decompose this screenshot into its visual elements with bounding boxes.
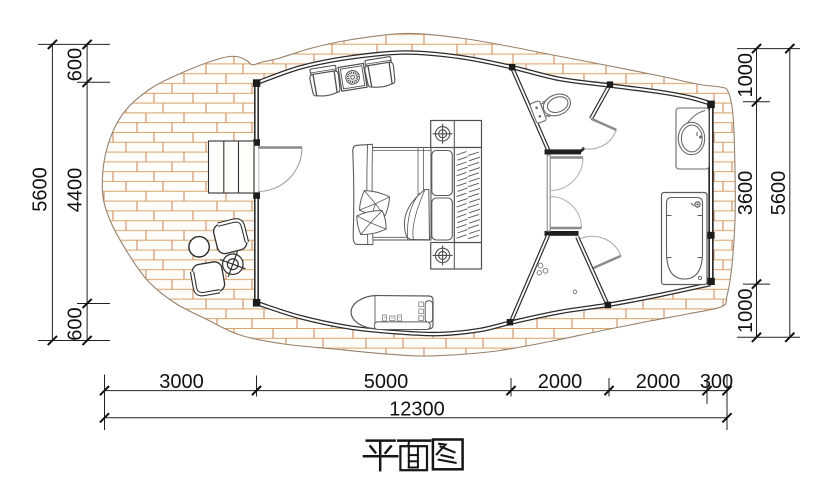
svg-text:300: 300 (700, 371, 733, 393)
svg-text:3600: 3600 (735, 171, 757, 216)
svg-text:2000: 2000 (636, 371, 681, 393)
svg-text:5000: 5000 (364, 371, 409, 393)
svg-text:4400: 4400 (65, 168, 87, 213)
svg-text:5600: 5600 (768, 171, 790, 216)
svg-text:5600: 5600 (30, 167, 52, 212)
svg-text:12300: 12300 (389, 398, 445, 420)
svg-text:1000: 1000 (735, 53, 757, 98)
svg-text:2000: 2000 (538, 371, 583, 393)
svg-text:1000: 1000 (735, 288, 757, 333)
svg-text:600: 600 (65, 307, 87, 340)
svg-text:600: 600 (65, 48, 87, 81)
svg-text:3000: 3000 (159, 371, 204, 393)
